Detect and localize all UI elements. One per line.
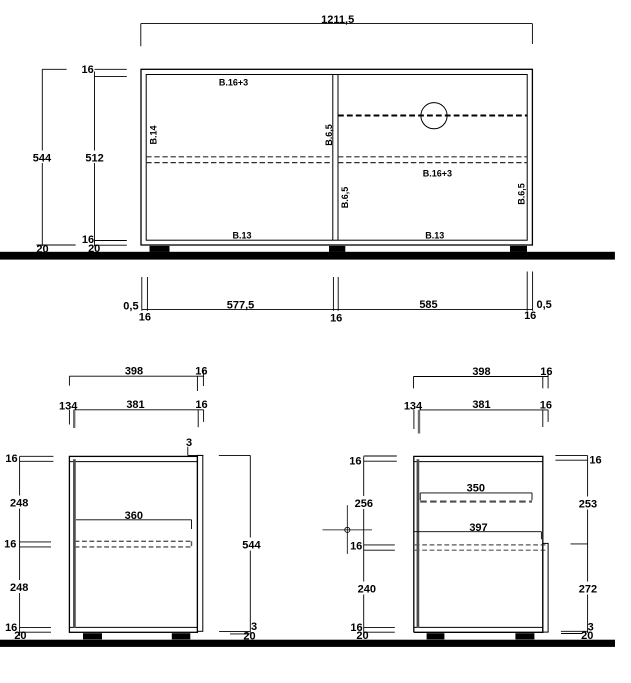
svg-text:360: 360 — [125, 510, 143, 522]
svg-text:B.16+3: B.16+3 — [219, 77, 248, 87]
svg-text:16: 16 — [139, 312, 151, 324]
svg-text:16: 16 — [540, 366, 552, 378]
svg-text:398: 398 — [472, 366, 490, 378]
svg-text:350: 350 — [467, 483, 485, 495]
svg-text:16: 16 — [195, 366, 207, 378]
svg-text:16: 16 — [195, 399, 207, 411]
svg-text:16: 16 — [349, 455, 361, 467]
svg-text:134: 134 — [404, 400, 423, 412]
svg-text:381: 381 — [126, 399, 144, 411]
svg-text:16: 16 — [5, 453, 17, 465]
svg-text:B.14: B.14 — [149, 125, 159, 144]
svg-text:20: 20 — [88, 243, 100, 255]
svg-text:397: 397 — [469, 522, 487, 534]
svg-text:1211,5: 1211,5 — [321, 14, 354, 26]
svg-text:544: 544 — [33, 153, 52, 165]
svg-text:16: 16 — [524, 310, 536, 322]
svg-text:20: 20 — [36, 244, 48, 256]
svg-text:B.6,5: B.6,5 — [340, 187, 350, 209]
svg-text:0,5: 0,5 — [537, 299, 552, 311]
svg-text:577,5: 577,5 — [227, 299, 255, 311]
svg-text:0,5: 0,5 — [123, 300, 138, 312]
svg-text:B.6,5: B.6,5 — [517, 183, 527, 205]
svg-text:16: 16 — [540, 399, 552, 411]
svg-text:B.16+3: B.16+3 — [423, 169, 452, 179]
svg-text:272: 272 — [579, 583, 597, 595]
svg-text:16: 16 — [81, 64, 93, 76]
svg-text:16: 16 — [330, 312, 342, 324]
svg-text:398: 398 — [125, 366, 143, 378]
svg-text:3: 3 — [186, 437, 192, 449]
svg-text:240: 240 — [358, 584, 376, 596]
svg-text:253: 253 — [579, 498, 597, 510]
svg-text:B.13: B.13 — [232, 230, 251, 240]
svg-text:585: 585 — [419, 299, 437, 311]
svg-text:16: 16 — [350, 541, 362, 553]
svg-text:B.13: B.13 — [425, 230, 444, 240]
svg-text:381: 381 — [472, 399, 490, 411]
svg-text:544: 544 — [242, 539, 261, 551]
svg-text:B.6,5: B.6,5 — [324, 124, 334, 146]
svg-text:16: 16 — [589, 455, 601, 467]
svg-text:134: 134 — [59, 400, 78, 412]
svg-text:248: 248 — [10, 582, 28, 594]
svg-text:512: 512 — [85, 153, 103, 165]
svg-text:256: 256 — [355, 498, 373, 510]
svg-text:16: 16 — [4, 539, 16, 551]
svg-text:248: 248 — [10, 498, 28, 510]
